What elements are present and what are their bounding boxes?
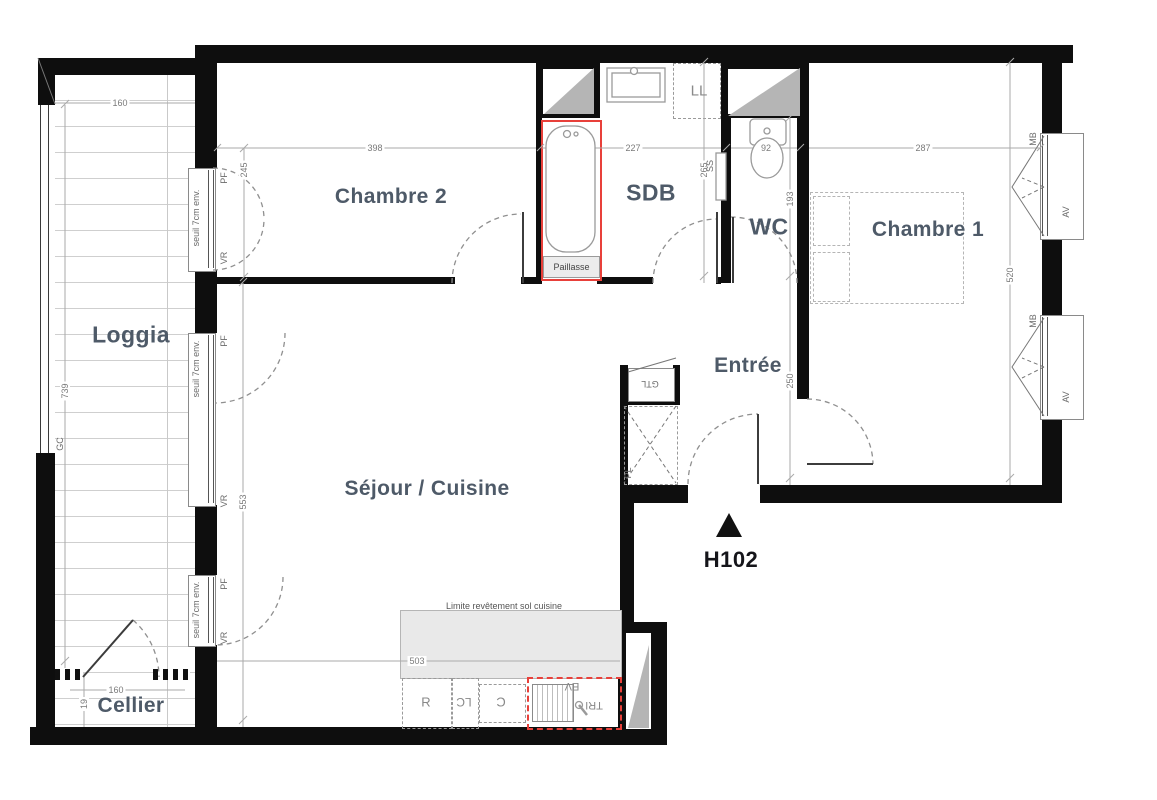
wall — [195, 45, 217, 168]
shaft-wc — [728, 69, 800, 114]
vr-label: VR — [219, 495, 229, 508]
kitchen-tri-label: TRI — [585, 699, 603, 711]
room-label-sejour: Séjour / Cuisine — [344, 477, 509, 501]
wall — [1042, 55, 1062, 133]
room-label-cellier: Cellier — [98, 694, 165, 718]
kitchen-floor-area — [400, 610, 622, 679]
pl-label: PL — [623, 467, 633, 478]
vr-label: VR — [219, 632, 229, 645]
window-glazing — [208, 170, 214, 268]
window-glazing — [208, 577, 214, 643]
room-label-chambre2: Chambre 2 — [335, 185, 447, 209]
room-label-entree: Entrée — [714, 354, 782, 378]
seuil-note: seuil 7cm env. — [191, 190, 201, 247]
wall — [1042, 238, 1062, 315]
pillow — [813, 252, 850, 302]
gtl-label: GTL — [641, 379, 659, 389]
vr-label: VR — [219, 252, 229, 265]
room-label-chambre1: Chambre 1 — [872, 218, 984, 242]
dim-sdb-w: 227 — [623, 143, 642, 153]
room-label-sdb: SDB — [626, 180, 676, 207]
wall — [521, 277, 542, 284]
wall — [38, 58, 55, 105]
av-label: AV — [1061, 391, 1071, 402]
wall — [760, 485, 1062, 503]
wall — [195, 645, 217, 745]
wall — [36, 453, 55, 735]
pf-label: PF — [219, 578, 229, 590]
kitchen-c-label: C — [496, 695, 505, 710]
dim-chambre1-h: 520 — [1005, 265, 1015, 284]
seuil-note: seuil 7cm env. — [191, 582, 201, 639]
ss-label: SS — [705, 160, 715, 172]
dim-cellier-w: 160 — [106, 685, 125, 695]
mb-label: MB — [1028, 132, 1038, 146]
mb-label: MB — [1028, 314, 1038, 328]
loggia-railing — [40, 105, 49, 453]
wall — [195, 270, 217, 333]
kitchen-limit-note: Limite revêtement sol cuisine — [446, 601, 562, 611]
unit-id-label: H102 — [704, 547, 759, 573]
window-glazing — [1042, 317, 1048, 416]
kitchen-ev-label: EV — [565, 680, 580, 692]
dim-loggia-h: 739 — [60, 381, 70, 400]
kitchen-lc-label: LC — [456, 695, 471, 709]
pillow — [813, 196, 850, 246]
dim-wc-h: 193 — [785, 189, 795, 208]
seuil-note: seuil 7cm env. — [191, 341, 201, 398]
pf-label: PF — [219, 172, 229, 184]
window-glazing — [208, 335, 214, 503]
dim-cuisine-w: 503 — [407, 656, 426, 666]
loggia-deck-pattern — [55, 75, 195, 727]
dim-entree-h: 250 — [785, 371, 795, 390]
dim-window-c2: 245 — [239, 160, 249, 179]
threshold-hatch — [153, 669, 190, 680]
threshold-hatch — [55, 669, 83, 680]
window-glazing — [1042, 135, 1048, 236]
pf-label: PF — [219, 335, 229, 347]
floor-plan: Paillasse — [0, 0, 1157, 800]
dim-wc-w: 92 — [759, 143, 773, 153]
kitchen-r-label: R — [421, 695, 430, 710]
wall — [217, 277, 455, 284]
wall — [716, 277, 721, 284]
entrance-arrow — [716, 513, 742, 537]
wall — [195, 505, 217, 575]
ll-label: LL — [691, 83, 708, 100]
dim-chambre1-w: 287 — [913, 143, 932, 153]
paillasse: Paillasse — [543, 256, 600, 278]
dim-chambre2-w: 398 — [365, 143, 384, 153]
room-label-wc: WC — [749, 214, 788, 241]
wall — [620, 485, 634, 622]
wall — [597, 277, 653, 284]
dim-cellier-s: 19 — [79, 697, 89, 711]
wall — [195, 45, 1073, 63]
loggia-edge-line — [167, 75, 168, 727]
wall — [625, 485, 688, 503]
dim-sejour-h: 553 — [238, 492, 248, 511]
wall — [38, 58, 195, 75]
room-label-loggia: Loggia — [92, 322, 170, 349]
paillasse-label: Paillasse — [553, 262, 589, 272]
dim-loggia-top: 160 — [110, 98, 129, 108]
shaft-sdb — [543, 69, 593, 114]
av-label: AV — [1061, 206, 1071, 217]
duct-shaft — [626, 633, 651, 729]
gc-label: GC — [55, 437, 65, 451]
